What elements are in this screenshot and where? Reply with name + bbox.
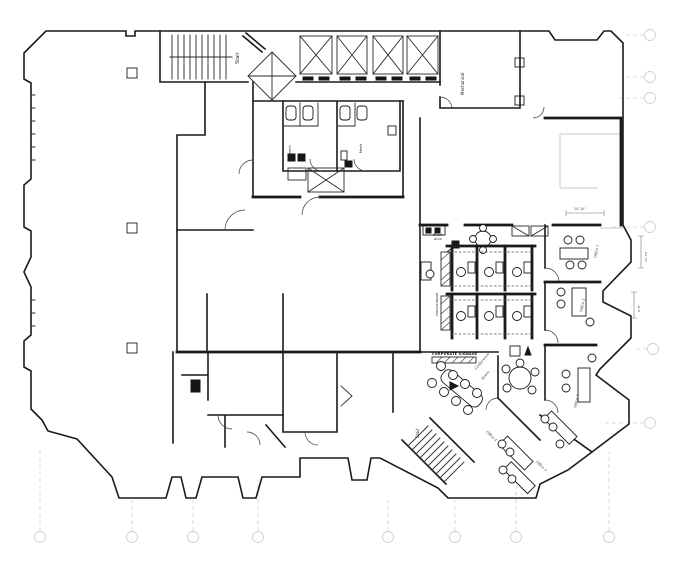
dim-office-1-width: 14'-10" — [574, 207, 586, 211]
structural-columns — [127, 58, 524, 353]
label-stair-north: Stair — [235, 51, 241, 64]
shell-partial-walls — [560, 96, 623, 228]
restrooms — [253, 101, 403, 171]
files-storage-cabinets — [441, 252, 450, 330]
printer-station — [510, 346, 531, 356]
dim-right-upper: 16'-10" — [644, 250, 648, 262]
office-3 — [545, 345, 596, 413]
label-office-1: Office 1 — [593, 244, 600, 258]
elevator-door-jambs — [303, 77, 436, 80]
label-mechanical: Mechanical — [460, 72, 465, 95]
label-corporate-signage: CORPORATE SIGNAGE — [432, 352, 478, 356]
label-mens: Men's — [359, 143, 363, 153]
grid-bubble-col-right — [645, 30, 659, 429]
label-womens: Women's — [288, 145, 292, 160]
label-conference-room: Room — [480, 370, 491, 382]
freight-elevator — [243, 33, 296, 100]
label-office-4: Office 4 — [485, 430, 497, 442]
label-area: Area — [433, 237, 442, 241]
plan-labels: Stair Mechanical Women's Men's Break Are… — [235, 51, 648, 472]
floor-plan-sheet: Stair Mechanical Women's Men's Break Are… — [0, 0, 676, 562]
floor-plan-canvas: Stair Mechanical Women's Men's Break Are… — [0, 0, 676, 562]
conference-room — [420, 352, 498, 415]
dim-right-lower: 9'-8" — [637, 304, 641, 312]
cubicle-block — [421, 246, 535, 338]
core-walls — [173, 82, 420, 447]
label-office-5: Office 5 — [535, 460, 547, 472]
label-stair-diagonal: Stair — [415, 428, 420, 438]
grid-bubble-row-bottom — [35, 532, 615, 543]
office-2 — [545, 282, 596, 345]
elevator-bank — [296, 36, 440, 82]
diagonal-offices — [498, 398, 592, 494]
label-files-storage: FILES/STORAGE — [435, 293, 439, 316]
mechanical-room — [440, 31, 520, 109]
round-table — [502, 359, 539, 394]
